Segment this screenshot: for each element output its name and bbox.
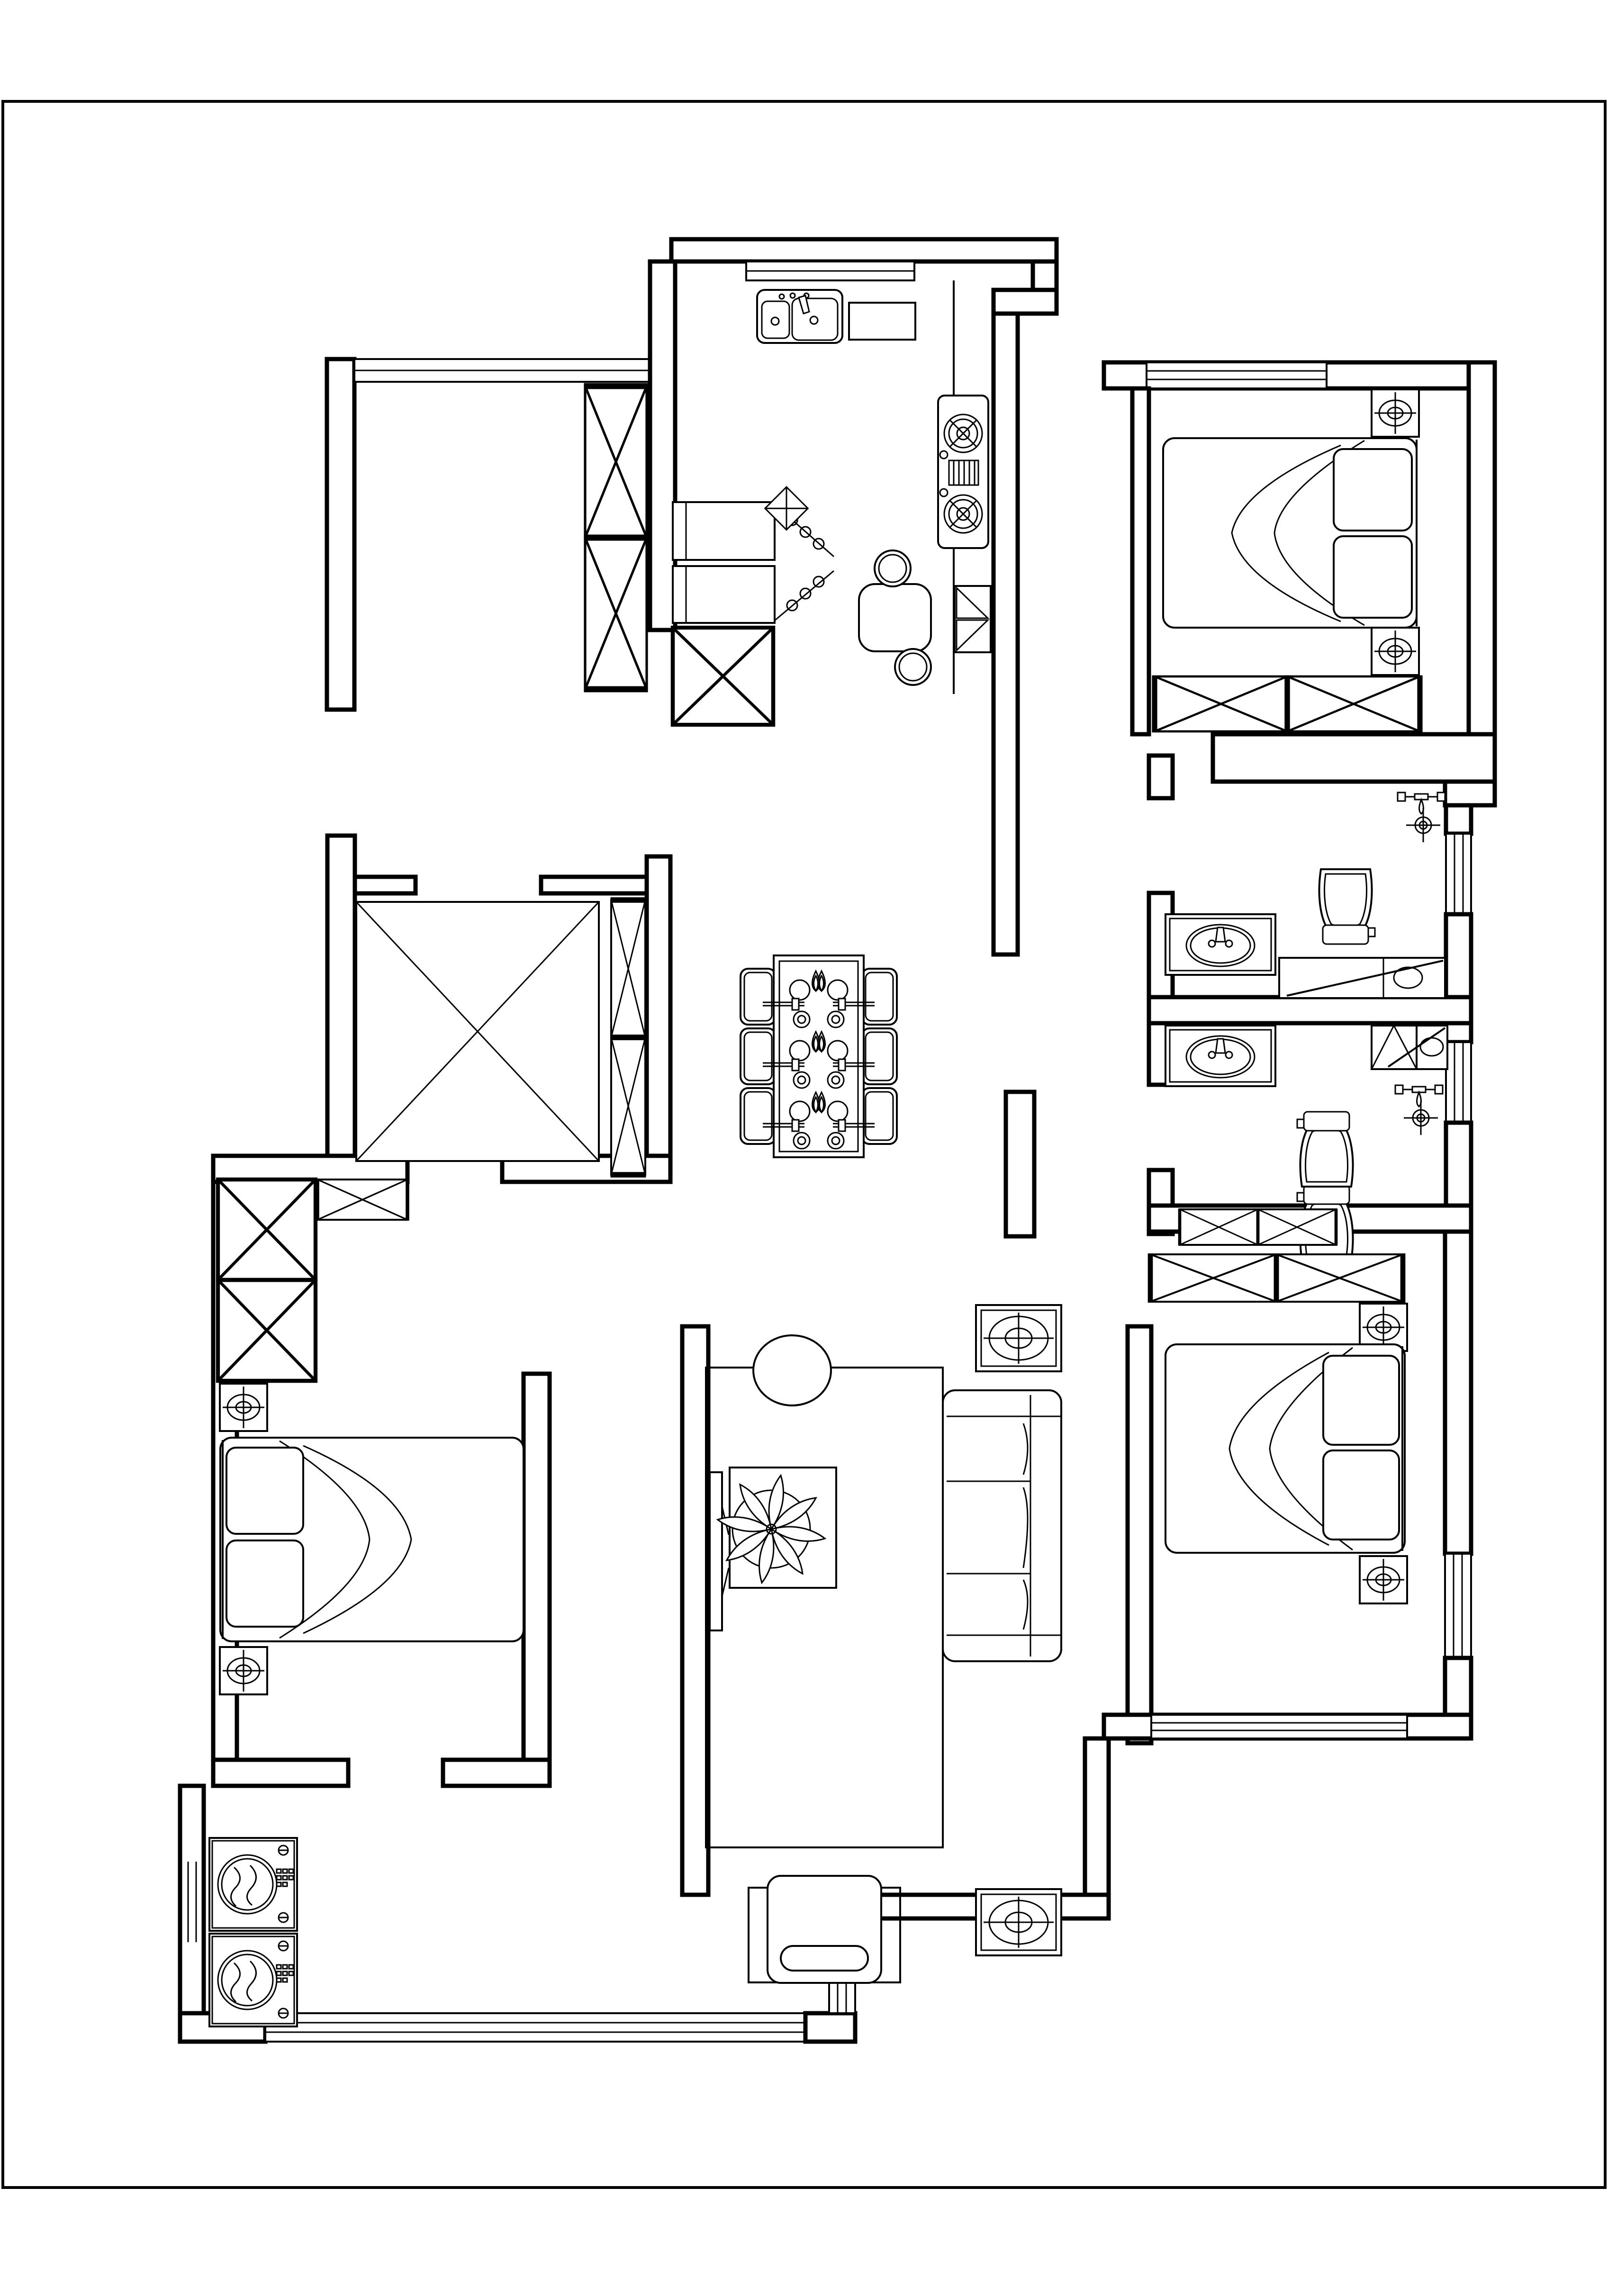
window-bedroom2-bottom xyxy=(1151,1715,1407,1738)
gas-stove-icon xyxy=(938,396,988,548)
pillow xyxy=(1334,536,1412,618)
stool xyxy=(875,550,911,586)
dining-set xyxy=(741,955,897,1157)
window-kitchen-top xyxy=(746,261,914,280)
toilet-icon xyxy=(1319,869,1375,944)
floor-drain-icon xyxy=(1404,1101,1438,1135)
floor-plan-canvas xyxy=(0,0,1608,2296)
kitchen-x-cabinet xyxy=(673,628,773,725)
washing-machine-icon xyxy=(209,1934,297,2026)
armchair xyxy=(749,1876,900,1983)
window-bedroom2-right xyxy=(1445,1554,1471,1658)
side-table xyxy=(976,1305,1061,1371)
sofa xyxy=(943,1390,1061,1661)
shower-head-icon xyxy=(1395,1085,1443,1107)
bedroom2 xyxy=(1150,1209,1407,1603)
television xyxy=(710,1472,729,1630)
window-bath-upper xyxy=(1446,834,1471,914)
bedroom3 xyxy=(218,1180,524,1694)
drawing-sheet xyxy=(0,0,1608,2296)
pillow xyxy=(1334,449,1412,531)
shower-head-icon xyxy=(1398,792,1445,814)
pillow xyxy=(226,1448,303,1534)
nightstand xyxy=(220,1384,267,1431)
nightstand xyxy=(1372,628,1419,675)
kitchen-bar-table xyxy=(859,550,931,685)
pillow xyxy=(1323,1356,1399,1445)
bedroom1 xyxy=(1155,389,1420,731)
side-table xyxy=(976,1889,1061,1955)
window-balcony-bottom xyxy=(265,2013,805,2042)
living-room xyxy=(706,1305,1061,1983)
tatami-platform xyxy=(356,902,599,1161)
wardrobe xyxy=(1155,676,1420,731)
nightstand xyxy=(1360,1556,1407,1603)
toilet-lower-fix xyxy=(1297,1112,1353,1187)
shower-cabinet xyxy=(1372,1026,1447,1069)
window-bedroom1-top xyxy=(1147,362,1327,388)
overhead-cabinet xyxy=(1180,1209,1336,1245)
vanity-basin-icon xyxy=(1165,1026,1275,1086)
vanity-basin-icon xyxy=(1165,914,1275,975)
wardrobe xyxy=(218,1180,316,1381)
kitchen-wall-cabinets xyxy=(673,502,834,623)
floor-drain-icon xyxy=(1406,808,1440,842)
window-bath-lower xyxy=(1446,1042,1471,1123)
shower-bench xyxy=(1279,958,1445,998)
study-cabinet xyxy=(611,900,645,1175)
balcony-storage-cabinet xyxy=(585,386,647,689)
nightstand xyxy=(1372,389,1419,437)
rug xyxy=(706,1368,943,1847)
laundry xyxy=(209,1838,297,2026)
overhead-cabinet xyxy=(317,1180,407,1220)
nightstand xyxy=(220,1647,267,1694)
bathroom-upper xyxy=(1165,792,1445,998)
refrigerator xyxy=(955,586,991,652)
washing-machine-icon xyxy=(209,1838,297,1931)
kitchen-sink xyxy=(757,290,842,343)
window-balcony-top xyxy=(354,359,650,382)
kitchen-counter-block xyxy=(849,303,915,340)
pillow xyxy=(226,1540,303,1627)
wardrobe xyxy=(1150,1254,1403,1302)
stool xyxy=(895,649,931,685)
pillow xyxy=(1323,1450,1399,1540)
ottoman xyxy=(753,1335,831,1405)
